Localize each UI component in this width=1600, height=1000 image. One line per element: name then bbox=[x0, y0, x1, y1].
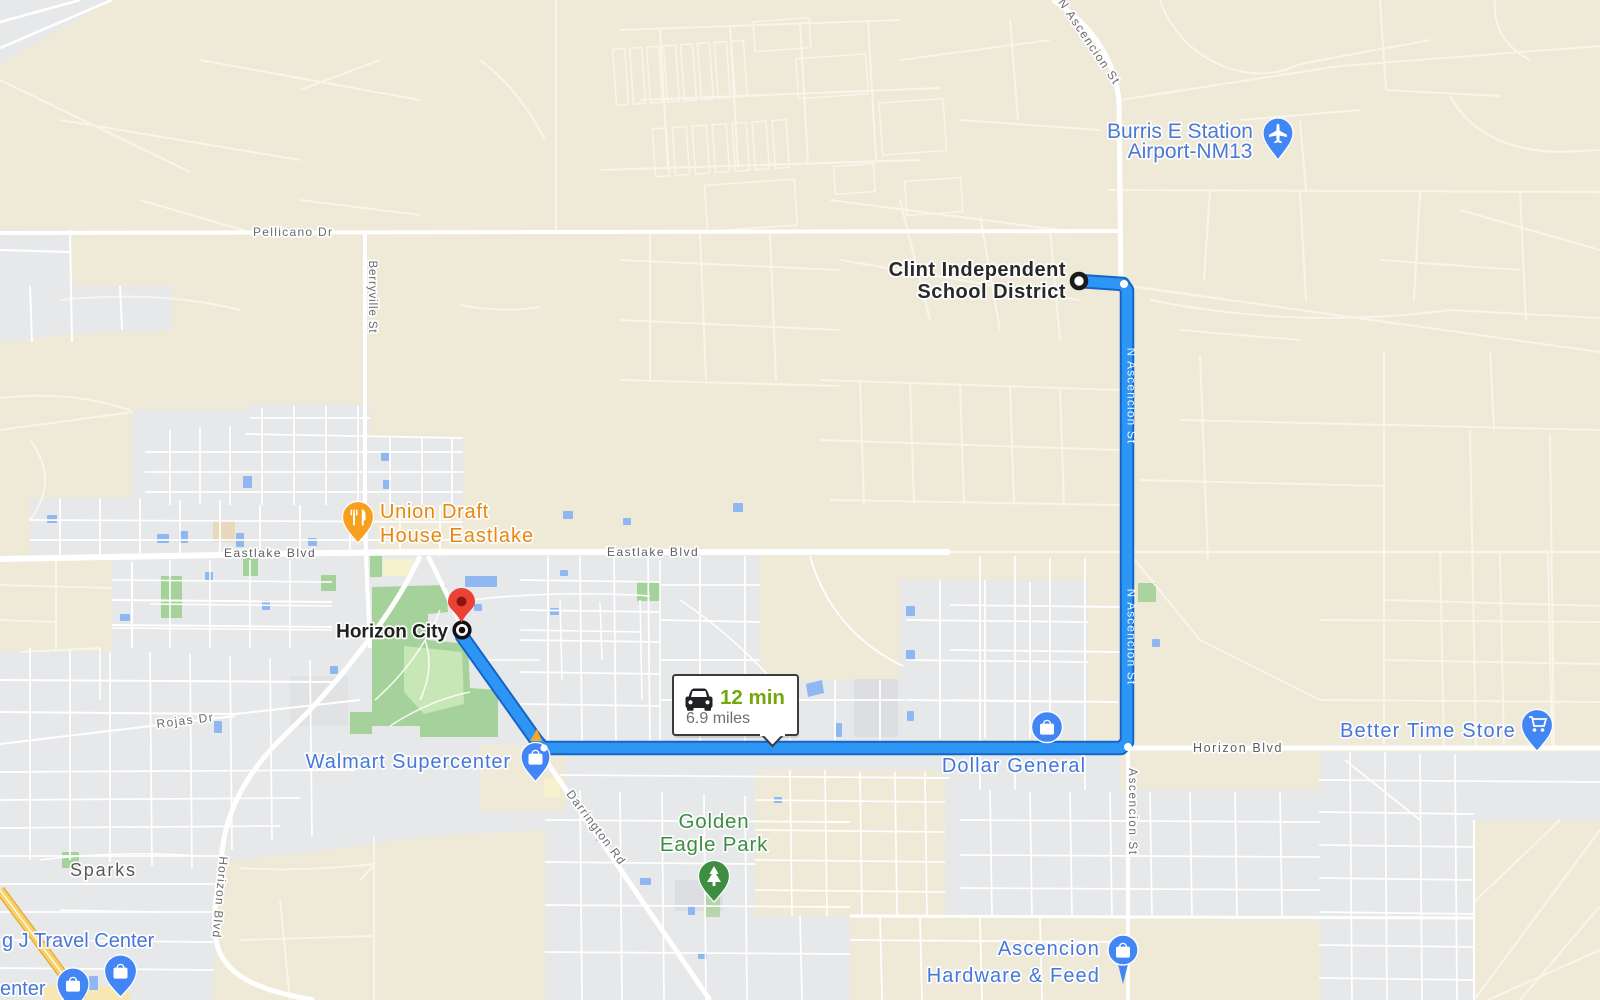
svg-text:Golden: Golden bbox=[679, 810, 750, 833]
svg-text:12 min: 12 min bbox=[720, 686, 785, 709]
svg-text:N Ascencion St: N Ascencion St bbox=[1125, 589, 1139, 686]
svg-text:Ascencion: Ascencion bbox=[998, 938, 1100, 960]
svg-text:Pellicano Dr: Pellicano Dr bbox=[253, 225, 333, 239]
svg-text:Clint Independent: Clint Independent bbox=[889, 259, 1066, 281]
svg-text:enter: enter bbox=[0, 978, 46, 1000]
svg-text:Berryville St: Berryville St bbox=[366, 260, 378, 333]
svg-text:Airport-NM13: Airport-NM13 bbox=[1128, 140, 1253, 163]
svg-text:Hardware & Feed: Hardware & Feed bbox=[927, 965, 1100, 987]
svg-text:Union Draft: Union Draft bbox=[380, 501, 489, 523]
svg-text:House Eastlake: House Eastlake bbox=[380, 525, 534, 547]
svg-text:6.9 miles: 6.9 miles bbox=[686, 710, 750, 727]
svg-text:g J Travel Center: g J Travel Center bbox=[2, 930, 155, 952]
svg-text:Walmart Supercenter: Walmart Supercenter bbox=[306, 751, 511, 773]
svg-text:Horizon City: Horizon City bbox=[336, 622, 448, 643]
svg-text:Eastlake Blvd: Eastlake Blvd bbox=[607, 545, 699, 559]
svg-text:Horizon Blvd: Horizon Blvd bbox=[1193, 741, 1283, 755]
svg-text:Sparks: Sparks bbox=[70, 860, 137, 880]
svg-text:N Ascencion St: N Ascencion St bbox=[1125, 348, 1139, 445]
svg-text:Eastlake Blvd: Eastlake Blvd bbox=[224, 546, 316, 560]
svg-text:Dollar General: Dollar General bbox=[942, 755, 1086, 777]
svg-text:Ascencion St: Ascencion St bbox=[1126, 768, 1138, 856]
svg-text:Better Time Store: Better Time Store bbox=[1340, 720, 1516, 742]
svg-text:Eagle Park: Eagle Park bbox=[660, 833, 768, 856]
svg-text:School District: School District bbox=[917, 281, 1066, 303]
